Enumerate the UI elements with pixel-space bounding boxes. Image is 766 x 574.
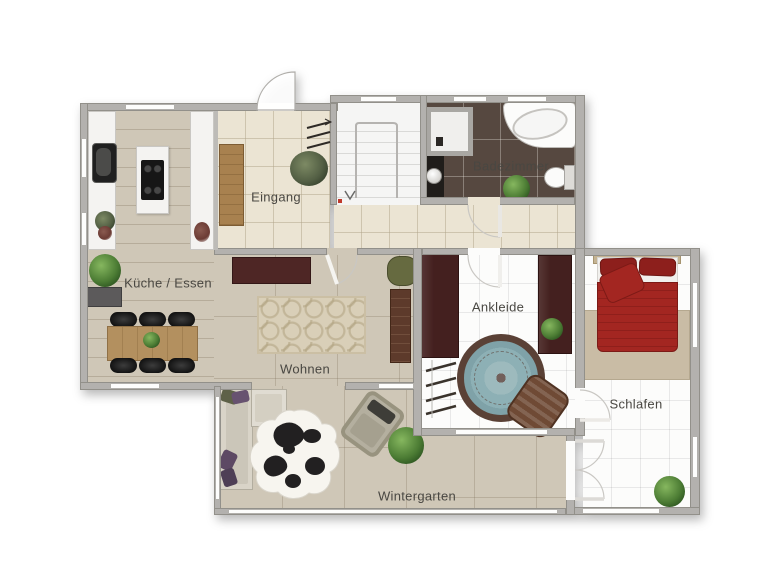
- dining-chair: [139, 358, 166, 373]
- room-label-wintergarden: Wintergarten: [378, 489, 456, 504]
- dining-plant-icon: [89, 254, 121, 287]
- entry-door-opening: [258, 103, 294, 111]
- living-sideboard: [232, 257, 311, 284]
- window: [582, 508, 660, 514]
- shower-icon: [426, 107, 473, 156]
- dining-chair: [110, 312, 137, 327]
- dressing-door-opening: [468, 248, 500, 255]
- floor-plan: Küche / Essen Eingang Badezimmer Wohnen …: [0, 0, 766, 574]
- window-glass-wall: [215, 396, 220, 500]
- wardrobe-left: [420, 253, 459, 358]
- window: [110, 383, 160, 389]
- cooktop-icon: [141, 160, 164, 200]
- window: [360, 96, 397, 102]
- wall-living-dressing: [413, 248, 422, 436]
- dining-chair: [168, 358, 195, 373]
- wall-kitchen-entrance-divider: [214, 111, 218, 250]
- sofa-chaise-cushion: [255, 394, 282, 422]
- wintergarden-bedroom-door-opening: [566, 441, 575, 500]
- window: [378, 383, 414, 389]
- entrance-plant-icon: [290, 151, 328, 186]
- wall-bedroom-top: [575, 248, 700, 256]
- sink-basin: [96, 148, 111, 176]
- kitchen-sink-icon: [92, 143, 117, 183]
- entrance-cabinet: [219, 144, 244, 226]
- window: [81, 212, 87, 246]
- dining-sideboard: [85, 287, 122, 307]
- room-label-kitchen: Küche / Essen: [124, 276, 212, 291]
- window: [692, 436, 698, 478]
- bath-door-opening: [468, 197, 500, 205]
- bed-pillow: [639, 257, 677, 276]
- wall-stair-bath: [420, 95, 427, 205]
- window-glass-wall: [228, 509, 558, 514]
- toilet-tank: [564, 165, 575, 190]
- room-label-bedroom: Schlafen: [610, 397, 663, 412]
- room-label-bathroom: Badezimmer: [473, 159, 549, 174]
- table-centerpiece-icon: [143, 332, 160, 348]
- floor-corridor: [334, 205, 575, 248]
- window: [453, 96, 487, 102]
- wall-entrance-living: [214, 248, 327, 255]
- wall-stair-left: [330, 103, 337, 205]
- living-door-opening: [327, 248, 357, 255]
- shower-drain: [436, 137, 443, 146]
- wall-kitchen-bottom: [80, 382, 252, 390]
- window: [455, 429, 548, 435]
- dining-chair: [110, 358, 137, 373]
- room-label-dressing: Ankleide: [472, 300, 524, 315]
- dining-chair: [168, 312, 195, 327]
- bedroom-plant-icon: [654, 476, 685, 507]
- wall-bath-right: [575, 95, 585, 255]
- window: [125, 104, 175, 110]
- dressing-bedroom-door-opening: [575, 388, 585, 418]
- wall-top-left-block: [80, 103, 338, 111]
- floor-plan-canvas: Küche / Essen Eingang Badezimmer Wohnen …: [0, 0, 766, 574]
- counter-plant-icon: [194, 222, 210, 242]
- dressing-plant-icon: [541, 318, 563, 340]
- corner-sofa-chaise: [251, 389, 287, 427]
- floor-staircase: [337, 103, 420, 205]
- window: [81, 138, 87, 178]
- bathroom-vanity: [424, 156, 444, 199]
- dining-chair: [139, 312, 166, 327]
- tv-board: [390, 289, 411, 363]
- kitchen-plant-red-icon: [98, 226, 112, 240]
- stair-treads: [337, 121, 420, 205]
- room-label-entrance: Eingang: [251, 190, 301, 205]
- room-label-living: Wohnen: [280, 362, 330, 377]
- living-rug: [257, 296, 366, 354]
- washbasin-icon: [426, 168, 442, 184]
- window: [692, 282, 698, 348]
- window: [507, 96, 547, 102]
- bathtub-basin: [509, 104, 570, 145]
